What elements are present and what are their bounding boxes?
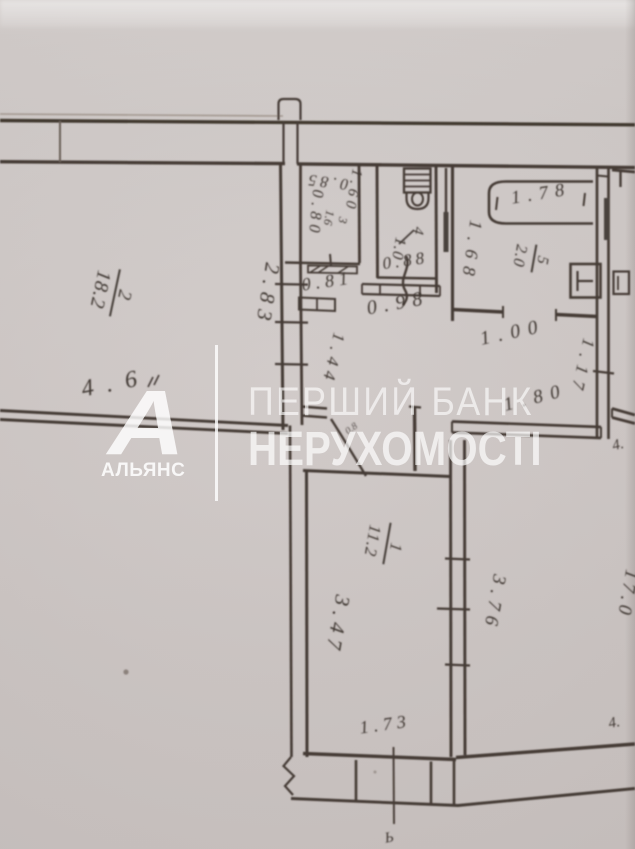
svg-text:3.47: 3.47: [321, 592, 355, 657]
svg-text:1.17: 1.17: [567, 337, 600, 399]
svg-text:17.0: 17.0: [613, 568, 635, 620]
svg-text:3: 3: [335, 215, 350, 224]
svg-text:0.88: 0.88: [381, 248, 429, 273]
svg-text:1.6: 1.6: [321, 209, 337, 226]
svg-text:1.78: 1.78: [510, 179, 573, 208]
svg-text:3.76: 3.76: [479, 572, 510, 633]
svg-text:11.2: 11.2: [360, 523, 384, 558]
svg-text:2.83: 2.83: [251, 261, 285, 329]
svg-text:1.73: 1.73: [358, 711, 412, 738]
svg-text:4.: 4.: [607, 714, 621, 732]
svg-text:1.68: 1.68: [458, 219, 487, 285]
svg-text:2.0: 2.0: [509, 243, 530, 269]
svg-text:1: 1: [386, 541, 406, 553]
svg-text:Ь: Ь: [383, 829, 396, 846]
svg-text:5: 5: [533, 255, 551, 266]
svg-text:18.2: 18.2: [85, 268, 115, 311]
svg-text:0.98: 0.98: [365, 287, 431, 320]
svg-text:4.: 4.: [611, 436, 626, 454]
svg-text:1.00: 1.00: [478, 315, 547, 349]
